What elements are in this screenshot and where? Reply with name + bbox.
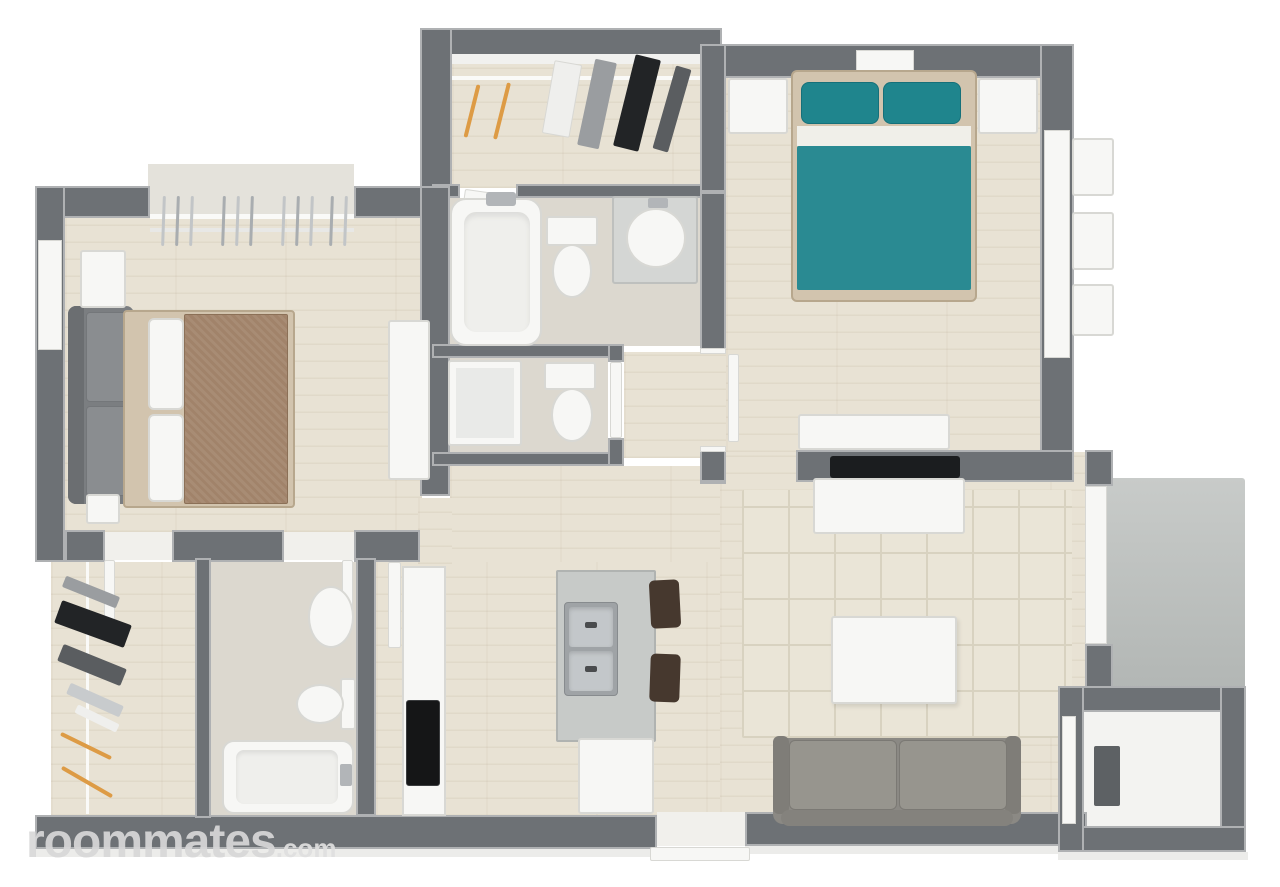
wall xyxy=(432,452,616,466)
window-sill xyxy=(1072,138,1114,196)
bathtub-1-basin xyxy=(464,212,530,332)
bathtub-2-faucet xyxy=(340,764,352,786)
bathtub-1-faucet xyxy=(486,192,516,206)
sink-faucet xyxy=(585,622,597,628)
hallway-floor xyxy=(624,352,726,458)
storage-door-frame xyxy=(1062,716,1076,824)
door-bedroom-1 xyxy=(388,562,401,648)
bed-1-pillow xyxy=(148,318,184,410)
toilet-1-tank xyxy=(546,216,598,246)
wall xyxy=(608,438,624,466)
watermark: roommates.com xyxy=(26,814,336,869)
wall xyxy=(1058,826,1246,852)
sofa-arm xyxy=(773,736,789,814)
window-band-bedroom-2 xyxy=(1044,130,1070,358)
watermark-suffix: .com xyxy=(276,833,337,864)
exterior-bevel xyxy=(1058,852,1248,860)
threshold-bathroom-2 xyxy=(284,532,354,560)
floorplan-canvas: roommates.com xyxy=(0,0,1280,887)
door-frame xyxy=(700,348,726,354)
window-sill xyxy=(1072,212,1114,270)
bed-1-pillow xyxy=(148,414,184,502)
sink-faucet xyxy=(585,666,597,672)
bathtub-2-basin xyxy=(236,750,338,804)
tv xyxy=(830,456,960,478)
wall xyxy=(700,192,726,352)
sofa-cushion xyxy=(899,740,1007,810)
nightstand-bedroom-2-right xyxy=(978,78,1038,134)
bed-2-sheet xyxy=(797,126,971,146)
toilet-2-bowl xyxy=(551,388,593,442)
tv-console xyxy=(813,478,965,534)
exterior-bevel xyxy=(745,846,1087,854)
wall xyxy=(420,28,452,192)
wall xyxy=(1058,686,1246,712)
bed-2-pillow-teal xyxy=(883,82,961,124)
bed-2-duvet-teal xyxy=(797,146,971,290)
bed-1-duvet-brown xyxy=(184,314,288,504)
entry-threshold xyxy=(657,812,745,846)
wall xyxy=(608,344,624,362)
watermark-brand: roommates xyxy=(26,814,276,869)
toilet-3-bowl xyxy=(296,684,344,724)
wall xyxy=(700,450,726,482)
bar-stool xyxy=(649,579,681,629)
bedroom-1-door-floor xyxy=(418,498,452,564)
wall xyxy=(1085,450,1113,486)
coffee-table xyxy=(831,616,957,704)
wall xyxy=(172,530,284,562)
pedestal-sink xyxy=(308,586,354,648)
closet-rail xyxy=(86,562,89,814)
toilet-2-tank xyxy=(544,362,596,390)
door-bedroom-2 xyxy=(728,354,739,442)
window-sill xyxy=(1072,284,1114,336)
entry-step xyxy=(650,847,750,861)
bed-2-pillow-teal xyxy=(801,82,879,124)
nightstand-bedroom-1 xyxy=(80,250,126,308)
toilet-1-bowl xyxy=(552,244,592,298)
nightstand-bedroom-2-left xyxy=(728,78,788,134)
wall xyxy=(356,558,376,816)
bar-stool xyxy=(649,653,681,702)
door-hallway xyxy=(610,362,622,438)
wall xyxy=(700,44,726,192)
side-table-bedroom-1 xyxy=(86,494,120,524)
closet-shelf xyxy=(452,54,700,64)
wall xyxy=(432,344,612,358)
sofa-back xyxy=(781,810,1013,826)
island-cabinet xyxy=(578,738,654,814)
window-top-bedroom-2 xyxy=(856,50,914,72)
bench-bedroom-2 xyxy=(798,414,950,450)
threshold-closet-2 xyxy=(105,532,172,560)
kitchen-floor-upper xyxy=(450,466,720,566)
dresser-bedroom-1 xyxy=(388,320,430,480)
sliding-door-patio xyxy=(1085,486,1107,644)
shower-floor xyxy=(456,368,514,438)
sofa-cushion xyxy=(789,740,897,810)
wall xyxy=(65,530,105,562)
cooktop xyxy=(406,700,440,786)
wall xyxy=(195,558,211,818)
window-bedroom-1 xyxy=(38,240,62,350)
sofa-arm xyxy=(1005,736,1021,814)
vanity-1-faucet xyxy=(648,198,668,208)
vanity-1-sink xyxy=(626,208,686,268)
water-heater xyxy=(1094,746,1120,806)
sofa-back xyxy=(68,306,84,504)
door-frame xyxy=(700,446,726,452)
